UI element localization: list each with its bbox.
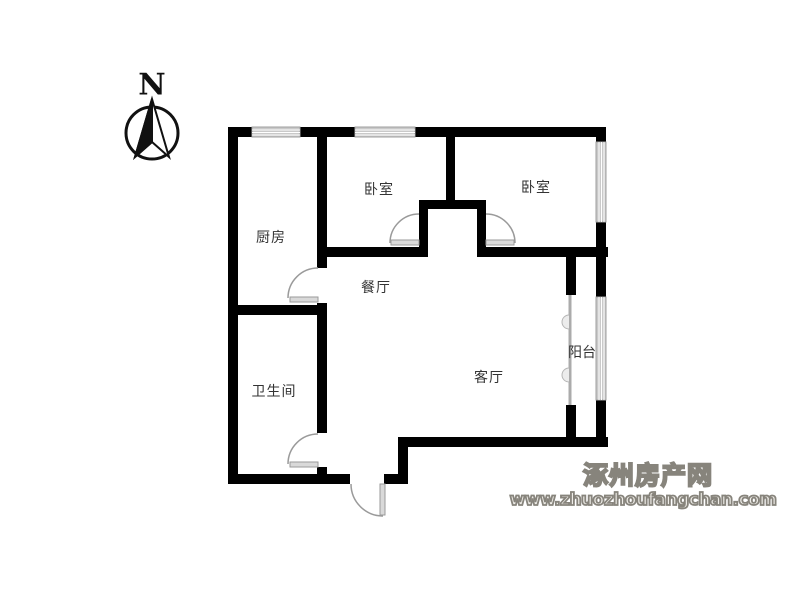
room-label-living: 客厅 [474,367,504,387]
wall-vestibule-top [419,200,486,209]
wall-bedroom-divider [446,137,455,200]
bedroom-left-door [390,214,419,245]
wall-vestibule-right [477,200,486,247]
wall-top-2 [300,127,355,137]
wall-kitchen-east-2 [317,303,327,433]
room-label-dining: 餐厅 [361,277,391,297]
window-kitchen [252,127,300,137]
wall-balcony-inner-top [566,257,576,295]
wall-top-3 [415,127,606,137]
wall-bedroom-right-south [477,247,608,257]
watermark-site-url: www.zhuozhoufangchan.com [510,490,777,510]
watermark-site-name: 涿州房产网 [583,456,713,492]
room-label-kitchen: 厨房 [256,227,286,247]
wall-balcony-inner-bottom [566,405,576,447]
wall-bathroom-north [228,305,327,315]
compass-north-label: N [138,68,165,103]
wall-bottom-right [398,437,608,447]
windows [252,127,606,400]
wall-right-2 [596,222,606,297]
floor-plan-page: 厨房 卧室 卧室 餐厅 卫生间 客厅 阳台 N 涿州房产网 www.zhuozh… [0,0,800,600]
floor-plan-drawing [0,0,800,600]
wall-bottom-left [228,474,350,484]
room-label-bedroom-left: 卧室 [364,179,394,199]
bedroom-right-door [486,214,515,245]
kitchen-door [288,268,318,302]
walls [228,127,608,484]
wall-dining-north [317,247,427,257]
window-balcony [596,297,606,400]
room-label-bathroom: 卫生间 [252,381,297,401]
wall-right-3 [596,400,606,447]
room-label-balcony: 阳台 [568,342,596,362]
window-bedroom-right [596,142,606,222]
window-bedroom-left [355,127,415,137]
wall-right-1 [596,127,606,142]
room-label-bedroom-right: 卧室 [521,177,551,197]
compass-rose-icon [126,99,178,159]
wall-kitchen-east-3 [317,467,327,484]
entrance-door [351,484,385,516]
doors [288,214,570,516]
bathroom-door [288,434,318,467]
